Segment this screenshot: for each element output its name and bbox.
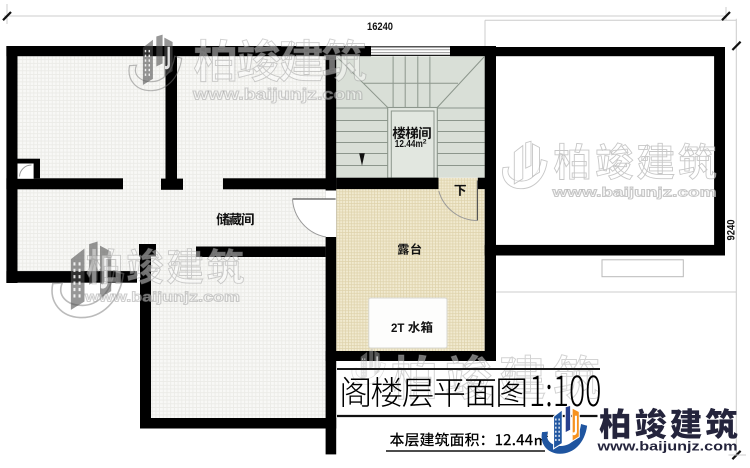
svg-text:www.baijunjz.com: www.baijunjz.com — [192, 87, 363, 104]
svg-text:www.baijunjz.com: www.baijunjz.com — [596, 440, 737, 454]
svg-text:2T: 2T — [391, 323, 404, 335]
svg-text:9240: 9240 — [726, 220, 738, 241]
svg-text:16240: 16240 — [367, 21, 393, 33]
svg-text:12.44m: 12.44m — [395, 139, 423, 150]
svg-text:2: 2 — [423, 139, 427, 146]
svg-text:www.baijunjz.com: www.baijunjz.com — [84, 290, 240, 305]
svg-text:www.baijunjz.com: www.baijunjz.com — [551, 185, 716, 200]
